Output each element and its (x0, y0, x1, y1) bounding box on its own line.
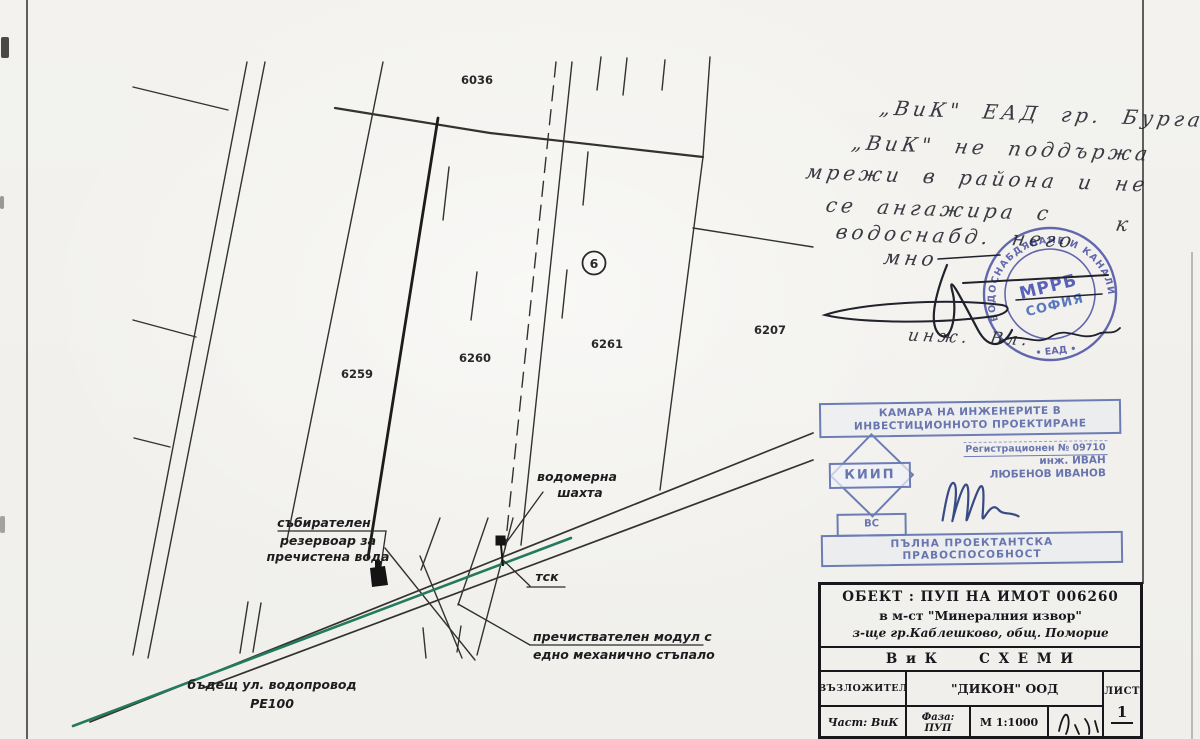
handwriting-signature-name: инж. Вл. (906, 326, 1032, 351)
scanned-plan-sheet: 6036 6259 6260 6261 6207 6 водомерна шах… (0, 0, 1200, 739)
handwriting-line-2: „ВиК" не поддържа (850, 130, 1153, 165)
handwriting-line-6: мно (882, 245, 940, 271)
handwriting-line-5-k: к (1114, 212, 1134, 236)
handwriting-line-1: „ВиК" ЕАД гр. Бургас (878, 96, 1200, 133)
handwritten-note: „ВиК" ЕАД гр. Бургас „ВиК" не поддържа м… (0, 0, 1200, 739)
handwriting-line-3: мрежи в района и не (804, 159, 1151, 196)
